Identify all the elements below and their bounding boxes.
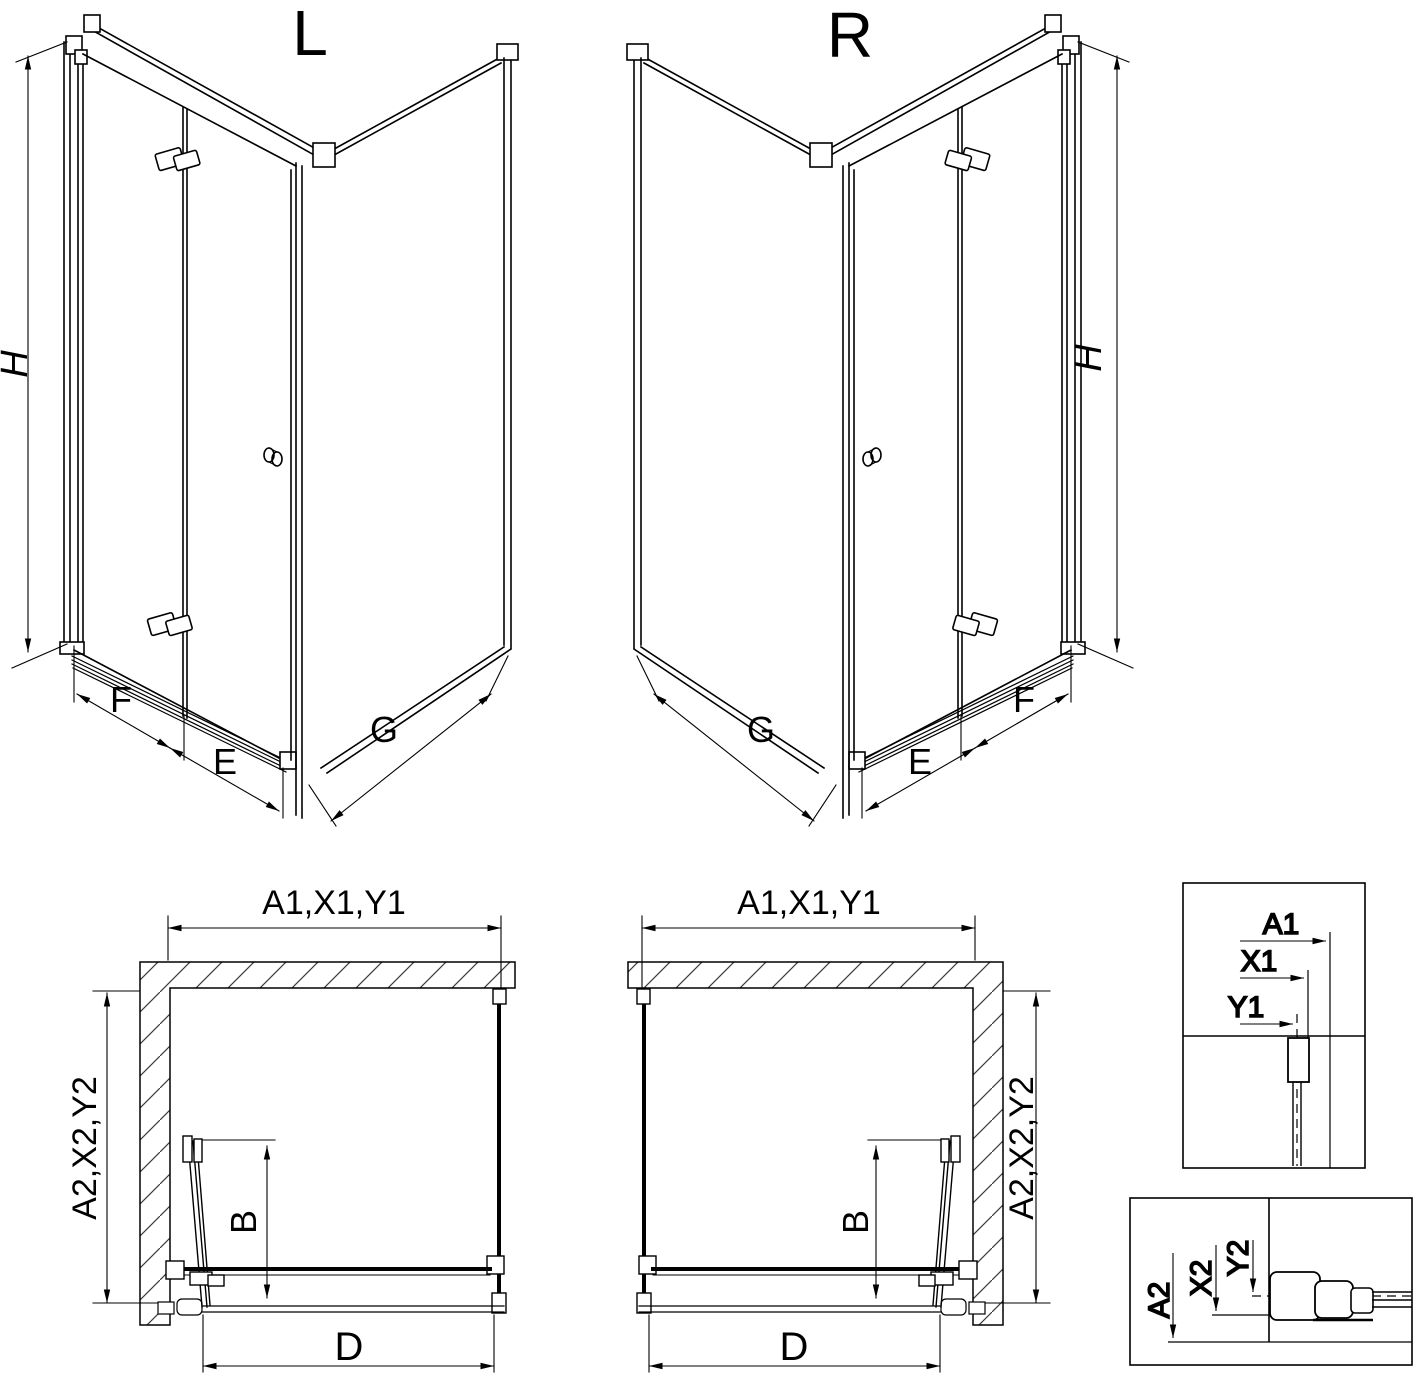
profile-clamp [1315,1281,1353,1318]
detail-label-a2: A2 [1143,1282,1176,1319]
enclosure-line-art-left [12,15,518,826]
dim-side-left: G [370,709,398,750]
plan-dim-depth-right: A2,X2,Y2 [1003,1076,1041,1220]
detail-label-x1: X1 [1241,945,1278,978]
dim-fold-left: E [213,741,237,782]
variant-label-right: R [827,0,873,71]
dim-height-left: H [0,350,36,378]
plan-left: A1,X1,Y1 A2,X2,Y2 B D [66,884,515,1372]
detail-label-a1: A1 [1263,908,1300,941]
detail-label-y1: Y1 [1228,991,1265,1024]
dim-fold-right: E [908,741,932,782]
detail-depth-datum: A2 X2 Y2 [1130,1198,1412,1365]
plan-dim-depth-left: A2,X2,Y2 [66,1076,104,1220]
plan-dim-opening-left: D [335,1325,364,1369]
technical-drawing: L H F E G R H G E F A1,X1,Y1 A2,X2,Y2 B … [0,0,1426,1397]
dim-door-left: F [110,679,132,720]
plan-dim-width-right: A1,X1,Y1 [737,884,881,922]
wall-profile-section [1288,1038,1309,1082]
enclosure-line-art-right [627,15,1133,826]
dim-height-right: H [1068,344,1110,372]
plan-dim-fold-left: B [223,1210,264,1234]
detail-label-x2: X2 [1185,1260,1218,1297]
dim-side-right: G [747,709,775,750]
view-right: R H G E F [627,0,1133,826]
drawing-sheet: L H F E G R H G E F A1,X1,Y1 A2,X2,Y2 B … [0,0,1426,1397]
plan-dim-fold-right: B [835,1210,876,1234]
view-left: L H F E G [0,0,518,826]
profile-body [1270,1272,1320,1320]
plan-dim-width-left: A1,X1,Y1 [262,884,406,922]
plan-right: A1,X1,Y1 A2,X2,Y2 B D [628,884,1050,1372]
detail-label-y2: Y2 [1222,1240,1255,1277]
glass-edges [1372,1292,1412,1307]
dim-door-right: F [1013,679,1035,720]
variant-label-left: L [292,0,328,69]
profile-gasket [1351,1288,1373,1313]
detail-width-datum: A1 X1 Y1 [1183,883,1365,1168]
plan-dim-opening-right: D [780,1325,809,1369]
